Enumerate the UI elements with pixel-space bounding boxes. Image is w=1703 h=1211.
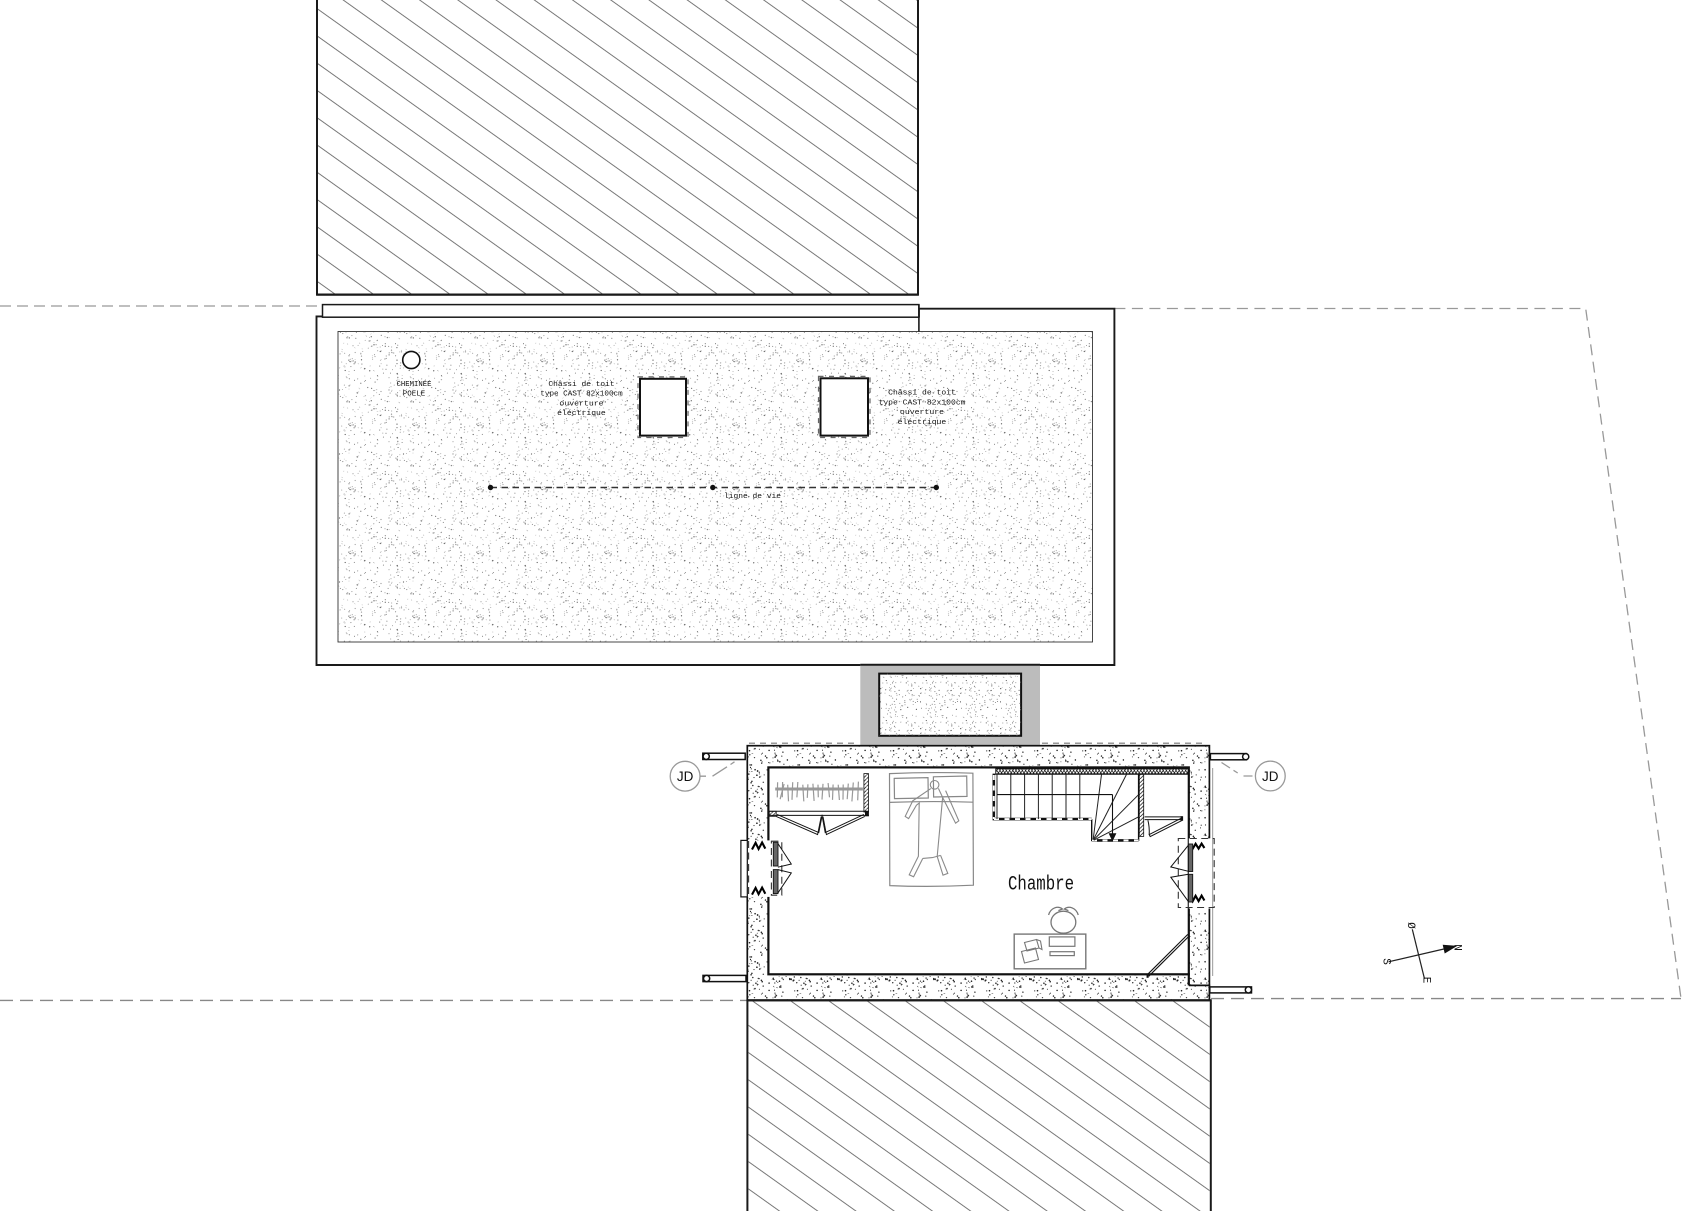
svg-text:Ø: Ø [1404, 922, 1416, 929]
svg-text:éléctrique: éléctrique [898, 419, 947, 427]
svg-text:POELE: POELE [403, 391, 426, 399]
svg-text:ouverture: ouverture [559, 400, 604, 408]
svg-text:S: S [1380, 958, 1392, 965]
svg-text:Châssi de toit: Châssi de toit [548, 381, 614, 389]
svg-text:Châssi de toit: Châssi de toit [888, 390, 956, 398]
svg-text:N: N [1451, 944, 1463, 951]
svg-text:ouverture: ouverture [900, 409, 945, 417]
svg-text:E: E [1420, 977, 1432, 984]
svg-text:JD: JD [1262, 769, 1279, 784]
svg-text:type CAST 82x100cm: type CAST 82x100cm [879, 399, 966, 407]
svg-text:JD: JD [677, 769, 694, 784]
svg-text:CHEMINÉE: CHEMINÉE [397, 380, 432, 389]
svg-text:éléctrique: éléctrique [557, 410, 606, 418]
svg-text:ligne de vie: ligne de vie [724, 493, 781, 501]
svg-text:type CAST 82x100cm: type CAST 82x100cm [540, 391, 623, 399]
svg-text:Chambre: Chambre [1008, 874, 1074, 897]
